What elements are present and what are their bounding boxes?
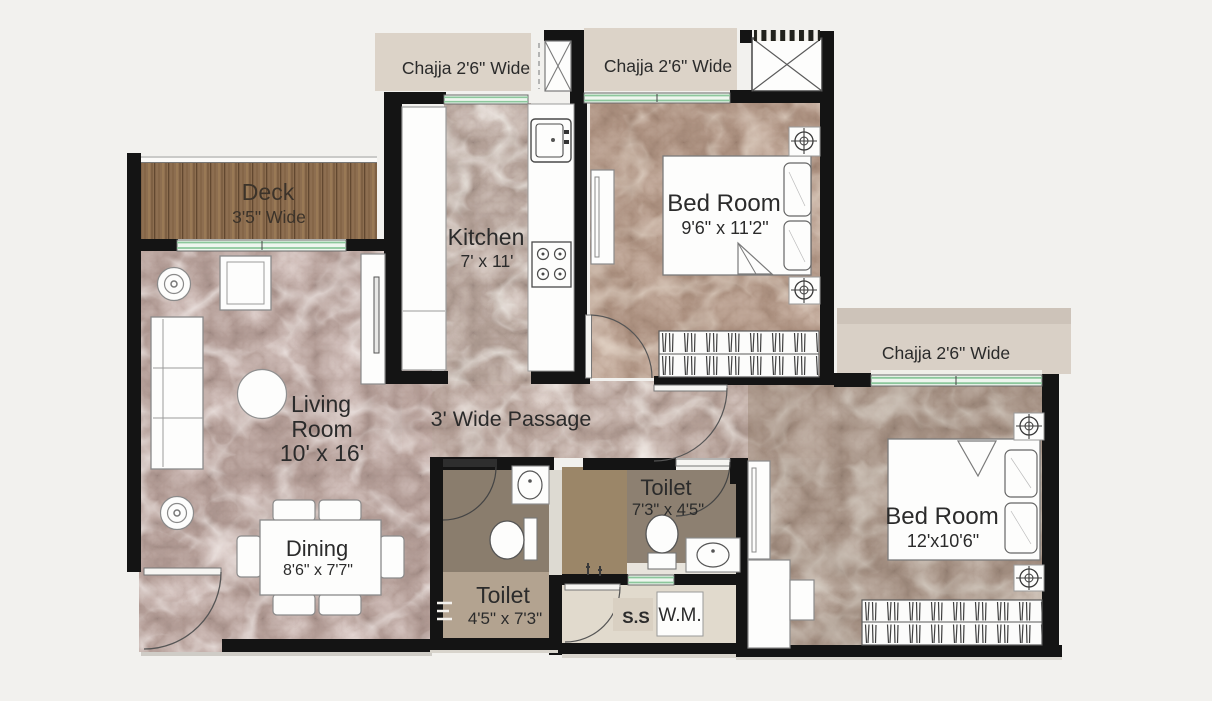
svg-text:7'3" x 4'5": 7'3" x 4'5" (632, 501, 704, 519)
svg-text:Living: Living (291, 391, 351, 417)
svg-text:S.S: S.S (622, 608, 649, 627)
svg-text:3' Wide Passage: 3' Wide Passage (431, 407, 592, 431)
svg-text:10' x 16': 10' x 16' (280, 440, 364, 466)
svg-text:Toilet: Toilet (476, 582, 530, 608)
svg-text:Chajja 2'6" Wide: Chajja 2'6" Wide (604, 56, 732, 76)
svg-text:4'5" x 7'3": 4'5" x 7'3" (468, 609, 542, 628)
svg-text:Chajja 2'6" Wide: Chajja 2'6" Wide (882, 343, 1010, 363)
svg-text:Room: Room (291, 416, 352, 442)
svg-text:3'5" Wide: 3'5" Wide (232, 207, 306, 227)
svg-text:Bed Room: Bed Room (667, 190, 780, 217)
svg-text:12'x10'6": 12'x10'6" (907, 531, 979, 551)
svg-text:W.M.: W.M. (658, 605, 701, 626)
svg-text:Deck: Deck (242, 179, 295, 205)
svg-text:7' x 11': 7' x 11' (460, 251, 513, 271)
svg-text:Chajja 2'6" Wide: Chajja 2'6" Wide (402, 58, 530, 78)
svg-text:8'6" x 7'7": 8'6" x 7'7" (283, 562, 353, 579)
svg-text:Kitchen: Kitchen (448, 224, 525, 250)
svg-text:9'6" x 11'2": 9'6" x 11'2" (681, 218, 768, 238)
svg-text:Dining: Dining (286, 536, 348, 561)
svg-text:Bed Room: Bed Room (885, 503, 998, 530)
svg-text:Toilet: Toilet (640, 475, 691, 500)
